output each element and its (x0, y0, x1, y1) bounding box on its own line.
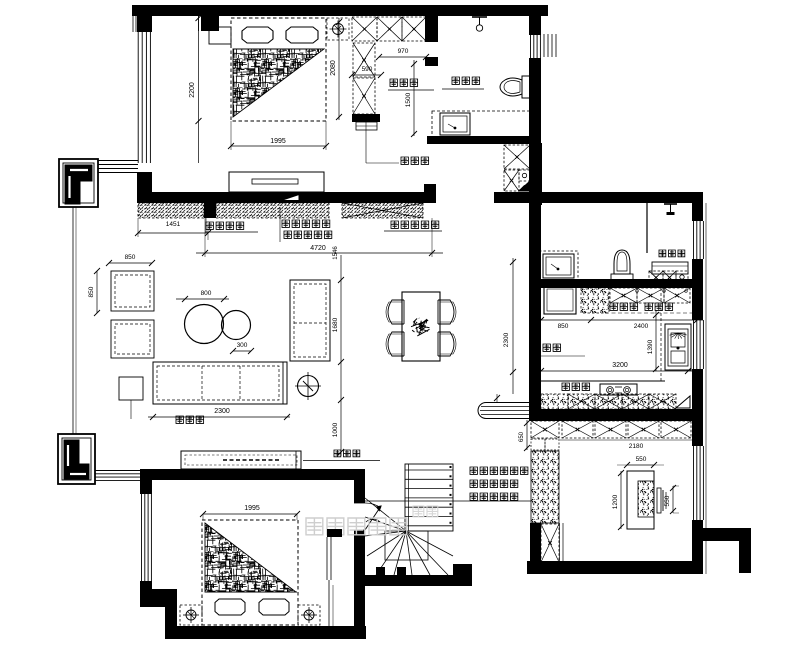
svg-text:590: 590 (362, 66, 373, 73)
svg-text:850: 850 (88, 286, 95, 297)
svg-text:4720: 4720 (310, 245, 326, 252)
svg-text:1995: 1995 (244, 505, 260, 512)
svg-text:970: 970 (398, 48, 409, 55)
svg-text:800: 800 (201, 290, 212, 297)
svg-text:650: 650 (519, 431, 525, 442)
svg-text:1200: 1200 (612, 494, 619, 509)
svg-text:2300: 2300 (214, 408, 230, 415)
svg-text:1546: 1546 (333, 246, 339, 260)
svg-text:300: 300 (237, 342, 248, 349)
svg-text:2080: 2080 (330, 60, 337, 76)
svg-text:1390: 1390 (647, 339, 654, 354)
svg-text:1000: 1000 (332, 422, 339, 437)
svg-text:2400: 2400 (634, 323, 649, 330)
svg-text:850: 850 (125, 254, 136, 261)
svg-text:550: 550 (664, 495, 671, 506)
svg-text:550: 550 (636, 456, 647, 463)
svg-text:2200: 2200 (189, 82, 196, 98)
svg-text:1995: 1995 (270, 138, 286, 145)
svg-text:1500: 1500 (405, 92, 412, 107)
svg-text:1680: 1680 (332, 317, 339, 332)
svg-text:3200: 3200 (612, 362, 628, 369)
svg-text:2180: 2180 (629, 443, 644, 450)
svg-text:1451: 1451 (166, 221, 181, 228)
svg-text:2300: 2300 (503, 332, 510, 347)
svg-text:850: 850 (558, 323, 569, 330)
